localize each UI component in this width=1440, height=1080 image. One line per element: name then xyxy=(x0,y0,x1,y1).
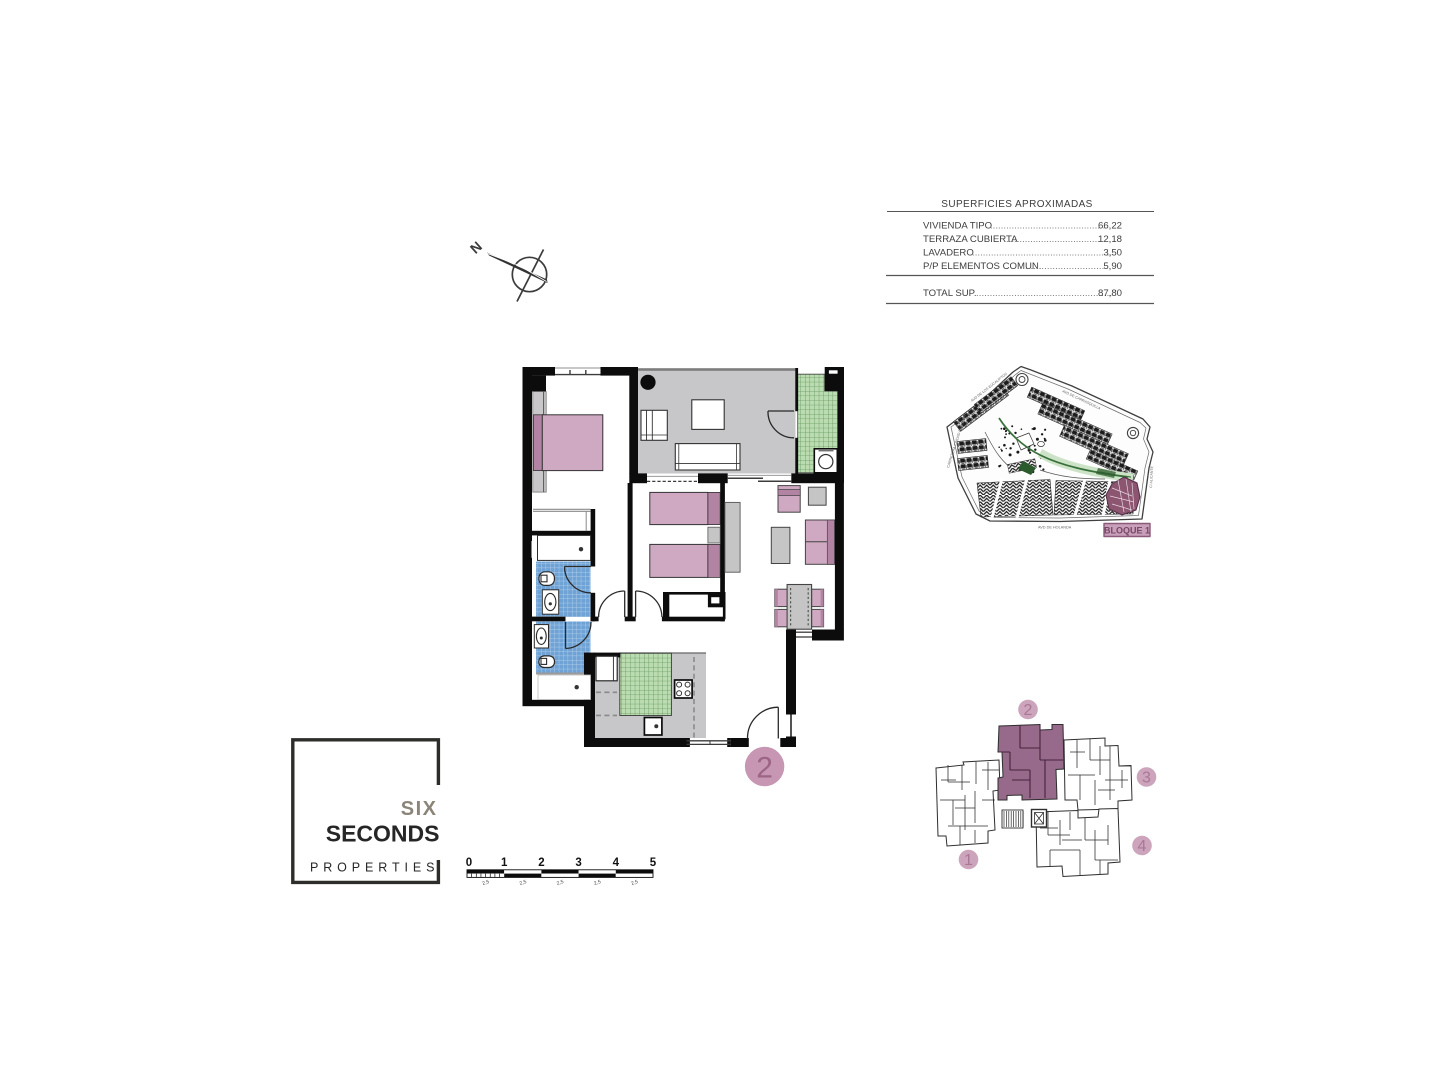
svg-text:2,5: 2,5 xyxy=(630,879,639,887)
svg-text:..............................: ...................................... xyxy=(1006,234,1108,245)
svg-text:2: 2 xyxy=(756,752,773,785)
svg-text:LAVADERO: LAVADERO xyxy=(923,248,974,259)
svg-text:3: 3 xyxy=(1142,770,1151,787)
svg-text:SIX: SIX xyxy=(401,798,438,820)
svg-text:..............................: ........................................… xyxy=(976,288,1112,299)
svg-text:2: 2 xyxy=(1024,702,1033,719)
svg-text:0: 0 xyxy=(466,857,472,869)
svg-text:2,5: 2,5 xyxy=(556,879,565,887)
svg-text:2,5: 2,5 xyxy=(519,879,528,887)
svg-text:2,5: 2,5 xyxy=(482,879,491,887)
svg-text:2,5: 2,5 xyxy=(593,879,602,887)
svg-text:BLOQUE 1: BLOQUE 1 xyxy=(1104,526,1150,536)
svg-text:AVD DE HOLANDA: AVD DE HOLANDA xyxy=(1038,526,1072,530)
svg-text:PROPERTIES: PROPERTIES xyxy=(310,861,439,875)
svg-text:SECONDS: SECONDS xyxy=(326,821,440,847)
svg-text:VIVIENDA TIPO: VIVIENDA TIPO xyxy=(923,221,992,232)
svg-text:..............................: ........................................… xyxy=(990,221,1108,232)
svg-text:TOTAL SUP.: TOTAL SUP. xyxy=(923,288,977,299)
svg-text:3: 3 xyxy=(575,857,581,869)
svg-text:5: 5 xyxy=(650,857,657,869)
svg-text:P/P ELEMENTOS COMUN.: P/P ELEMENTOS COMUN. xyxy=(923,261,1042,272)
svg-text:C/ ALICANTE: C/ ALICANTE xyxy=(1149,465,1154,488)
svg-text:1: 1 xyxy=(964,852,973,869)
svg-text:..............................: ........................................… xyxy=(972,248,1112,259)
svg-text:2: 2 xyxy=(538,857,544,869)
svg-text:4: 4 xyxy=(1138,838,1147,855)
svg-text:1: 1 xyxy=(501,857,508,869)
svg-text:N: N xyxy=(467,238,485,257)
svg-text:4: 4 xyxy=(613,857,620,869)
svg-text:SUPERFICIES APROXIMADAS: SUPERFICIES APROXIMADAS xyxy=(941,199,1092,210)
svg-text:..............................: .............................. xyxy=(1025,261,1107,272)
svg-text:87,80: 87,80 xyxy=(1098,288,1122,299)
svg-text:TERRAZA CUBIERTA: TERRAZA CUBIERTA xyxy=(923,234,1018,245)
